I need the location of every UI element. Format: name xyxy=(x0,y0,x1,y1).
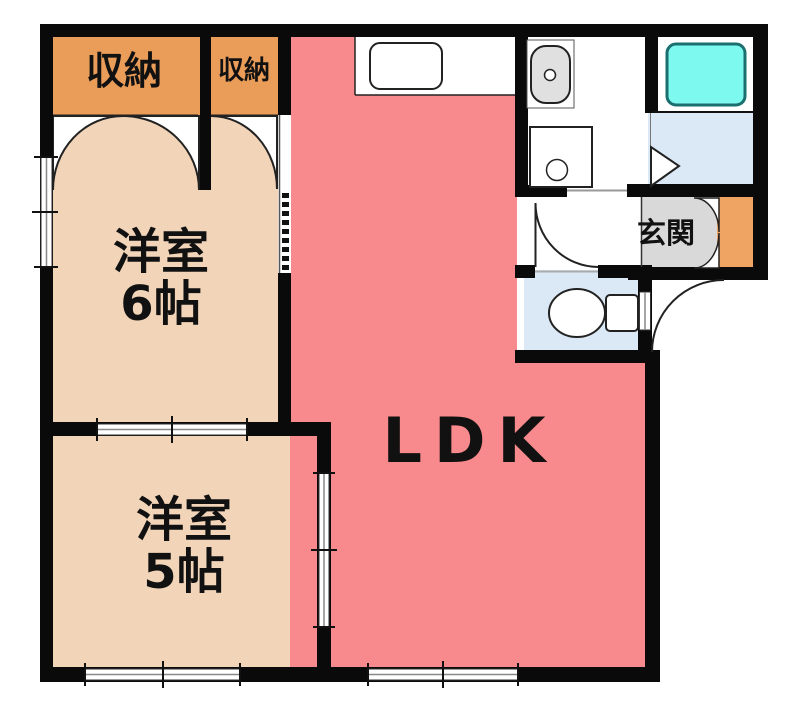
bathtub-icon xyxy=(667,44,745,105)
wall-left xyxy=(40,24,53,682)
wall-top xyxy=(40,24,768,37)
kitchen-counter xyxy=(355,37,515,95)
wall-room6-ldk-upper xyxy=(278,30,291,115)
kitchen-sink-icon xyxy=(370,43,442,89)
western-room5-size: 5帖 xyxy=(143,544,224,600)
wall-bath-entrance xyxy=(627,184,768,197)
western-room6-name: 洋室 xyxy=(113,224,209,280)
wall-entrance-bottom xyxy=(628,267,768,280)
wall-closet-divider xyxy=(200,30,211,190)
wall-ldk-right xyxy=(645,352,660,682)
floor-plan: 収納 収納 洋室 6帖 洋室 5帖 LDK 玄関 xyxy=(0,0,800,712)
vanity-faucet-icon xyxy=(545,70,556,81)
wall-kitchen-washroom xyxy=(515,30,528,196)
wall-right xyxy=(753,24,768,280)
shoe-cabinet xyxy=(717,196,753,268)
closet-small-label: 収納 xyxy=(218,55,270,86)
toilet-bowl-icon xyxy=(549,289,605,337)
entrance-label: 玄関 xyxy=(637,216,695,250)
closet-large-label: 収納 xyxy=(86,49,162,93)
western-room6-size: 6帖 xyxy=(120,276,201,332)
wall-hall-toilet-left xyxy=(515,265,535,278)
ldk-floor-extension xyxy=(515,352,650,672)
washing-machine-drain-icon xyxy=(547,160,568,181)
western-room5-name: 洋室 xyxy=(136,492,232,548)
wall-washroom-bath xyxy=(645,36,658,113)
ldk-label: LDK xyxy=(382,404,557,477)
wall-room6-ldk-lower xyxy=(278,273,291,422)
floor-plan-drawing: 収納 収納 洋室 6帖 洋室 5帖 LDK 玄関 xyxy=(0,0,800,712)
toilet-tank-icon xyxy=(606,295,638,331)
